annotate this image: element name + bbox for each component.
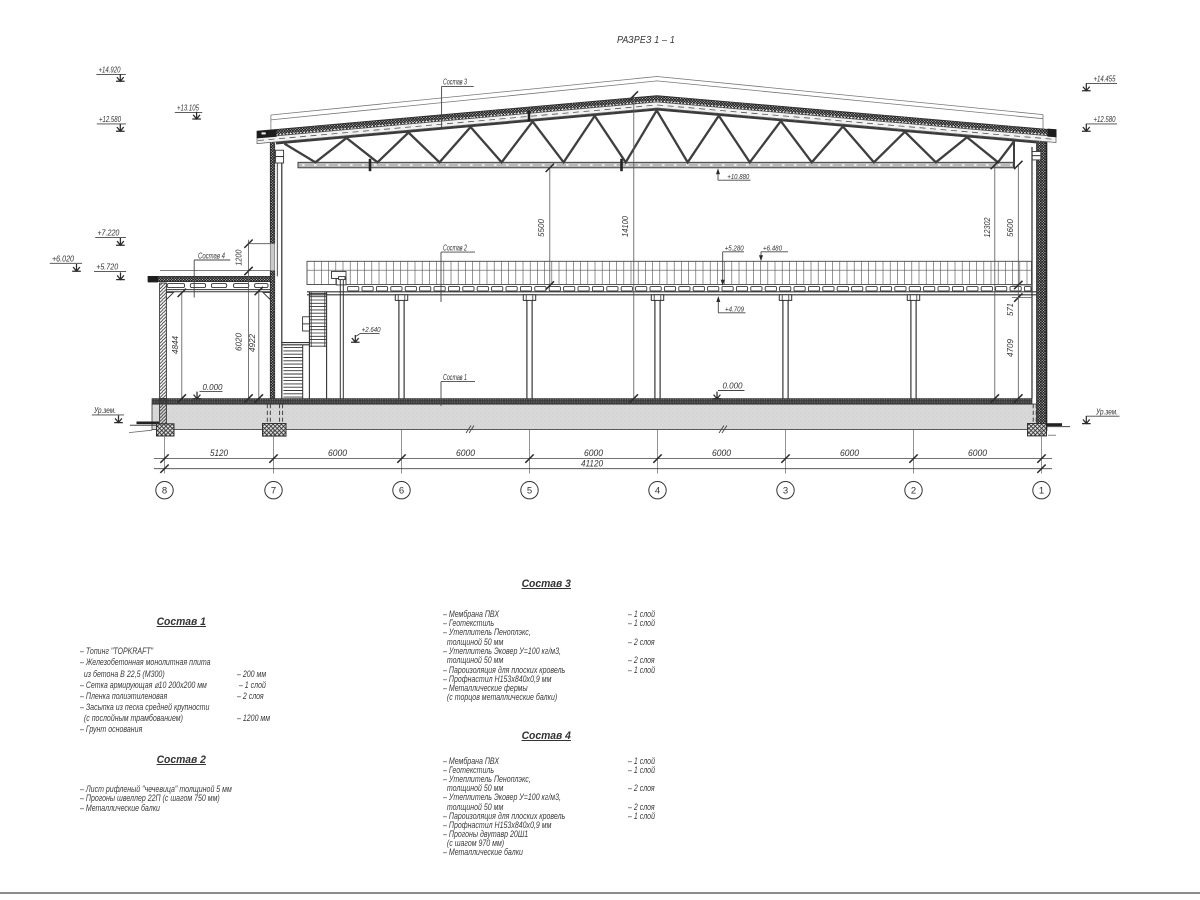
svg-text:1: 1 [1039, 486, 1044, 497]
svg-text:+14.920: +14.920 [99, 66, 122, 75]
svg-text:14100: 14100 [621, 216, 630, 237]
svg-text:0.000: 0.000 [723, 381, 743, 391]
svg-text:5500: 5500 [537, 219, 546, 237]
svg-text:Состав 3: Состав 3 [443, 78, 467, 87]
svg-text:6000: 6000 [712, 448, 731, 458]
svg-text:Ур.зем.: Ур.зем. [1095, 407, 1118, 416]
svg-text:6: 6 [399, 486, 404, 497]
svg-text:7: 7 [271, 486, 276, 497]
svg-text:4: 4 [655, 486, 660, 497]
svg-text:+5.720: +5.720 [96, 263, 119, 272]
svg-text:+12.580: +12.580 [99, 115, 122, 124]
svg-text:+10.880: +10.880 [727, 172, 750, 181]
svg-text:1200: 1200 [234, 249, 243, 265]
svg-text:5600: 5600 [1006, 219, 1015, 237]
svg-text:6000: 6000 [328, 448, 347, 458]
svg-text:+2.640: +2.640 [362, 325, 382, 334]
svg-text:12302: 12302 [983, 217, 992, 237]
svg-text:+13.105: +13.105 [177, 104, 200, 113]
svg-text:3: 3 [783, 486, 788, 497]
svg-text:4922: 4922 [248, 334, 257, 352]
svg-text:4844: 4844 [171, 336, 180, 354]
svg-text:2: 2 [911, 486, 916, 497]
svg-text:0.000: 0.000 [203, 382, 223, 392]
svg-text:4709: 4709 [1006, 339, 1015, 357]
svg-text:+14.455: +14.455 [1094, 75, 1117, 84]
svg-text:Состав 4: Состав 4 [198, 252, 225, 261]
svg-text:571: 571 [1006, 303, 1015, 316]
svg-text:Состав 1: Состав 1 [443, 373, 467, 382]
svg-text:Состав 2: Состав 2 [443, 244, 467, 253]
svg-text:5120: 5120 [210, 448, 228, 458]
svg-text:5: 5 [527, 486, 532, 497]
svg-text:+7.220: +7.220 [97, 229, 120, 238]
svg-text:+12.580: +12.580 [1094, 115, 1117, 124]
svg-text:6000: 6000 [584, 448, 603, 458]
svg-text:6000: 6000 [840, 448, 859, 458]
svg-text:+6.480: +6.480 [763, 243, 783, 252]
svg-text:8: 8 [162, 486, 167, 497]
svg-text:41120: 41120 [581, 459, 603, 469]
svg-text:6000: 6000 [456, 448, 475, 458]
svg-text:Ур.зем.: Ур.зем. [93, 406, 116, 415]
svg-text:6020: 6020 [234, 333, 243, 351]
svg-text:+6.020: +6.020 [52, 254, 75, 263]
svg-text:+4.709: +4.709 [725, 305, 745, 314]
svg-text:+5.280: +5.280 [725, 243, 745, 252]
svg-text:6000: 6000 [968, 448, 987, 458]
